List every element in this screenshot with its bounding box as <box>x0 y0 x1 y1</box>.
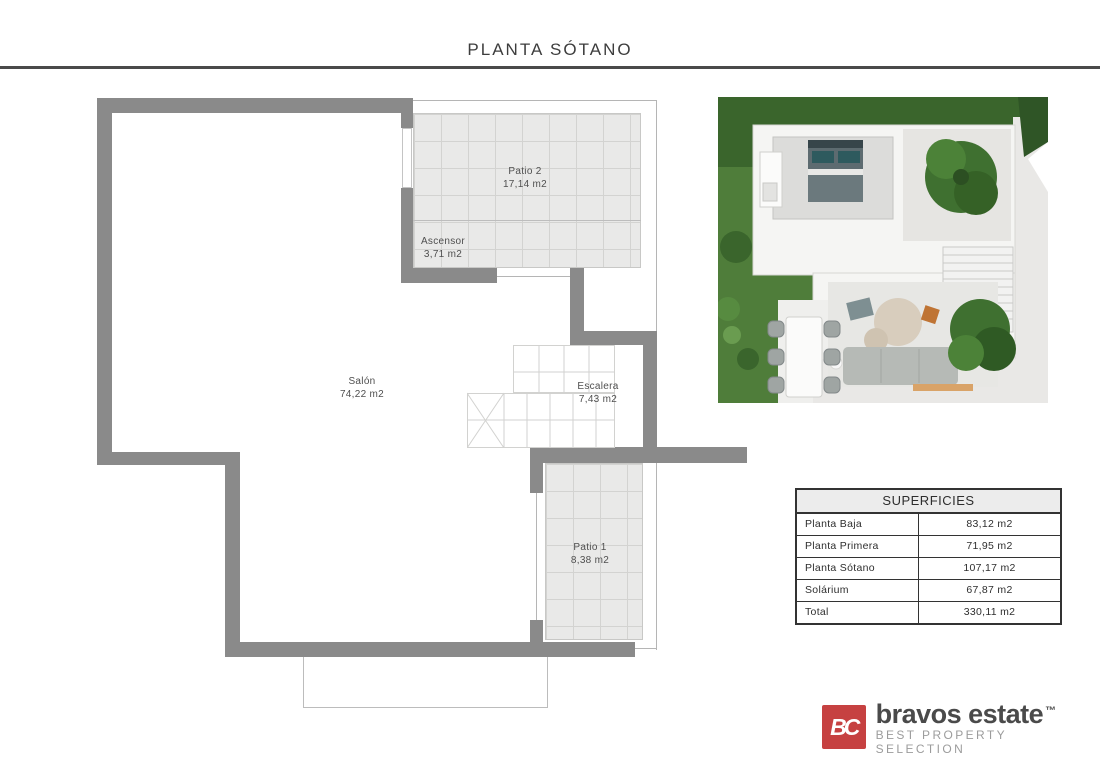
row-label: Planta Sótano <box>797 558 919 579</box>
row-value: 107,17 m2 <box>919 558 1060 579</box>
table-row: Planta Sótano 107,17 m2 <box>797 557 1060 579</box>
wall-east <box>643 331 657 463</box>
row-label: Total <box>797 602 919 623</box>
wall-below-patio2 <box>401 268 497 283</box>
room-area: 8,38 m2 <box>571 554 609 567</box>
table-row: Total 330,11 m2 <box>797 601 1060 623</box>
wall-patio1-west-upper <box>530 447 543 493</box>
room-name: Salón <box>340 375 384 388</box>
table-row: Planta Primera 71,95 m2 <box>797 535 1060 557</box>
render-3d-top-view <box>718 97 1048 413</box>
room-name: Ascensor <box>421 235 465 248</box>
row-label: Planta Primera <box>797 536 919 557</box>
room-area: 74,22 m2 <box>340 388 384 401</box>
floor-plan: Patio 2 17,14 m2 Ascensor 3,71 m2 Salón … <box>90 90 670 720</box>
header-divider <box>0 66 1100 69</box>
brand-name-text: bravos estate <box>876 699 1044 729</box>
room-name: Patio 2 <box>503 165 547 178</box>
brand-text: bravos estate™ BEST PROPERTY SELECTION <box>876 698 1100 756</box>
row-value: 71,95 m2 <box>919 536 1060 557</box>
surfaces-table: SUPERFICIES Planta Baja 83,12 m2 Planta … <box>795 488 1062 625</box>
room-label-patio2: Patio 2 17,14 m2 <box>503 165 547 191</box>
window-marker-salon <box>497 276 570 277</box>
row-value: 330,11 m2 <box>919 602 1060 623</box>
wall-patio2-west-upper <box>401 113 413 128</box>
row-value: 67,87 m2 <box>919 580 1060 601</box>
row-value: 83,12 m2 <box>919 514 1060 535</box>
room-area: 17,14 m2 <box>503 178 547 191</box>
door-marker <box>402 128 412 188</box>
wall-step <box>97 452 240 465</box>
trademark-symbol: ™ <box>1045 705 1056 717</box>
page-title: PLANTA SÓTANO <box>0 40 1100 60</box>
wall-left-lower <box>225 452 240 657</box>
room-name: Patio 1 <box>571 541 609 554</box>
plot-boundary-top <box>413 100 657 101</box>
row-label: Planta Baja <box>797 514 919 535</box>
wall-bottom <box>225 642 635 657</box>
brand-monogram: BC <box>822 705 866 749</box>
room-label-escalera: Escalera 7,43 m2 <box>577 380 618 406</box>
patio2-ascensor-divider <box>413 220 641 221</box>
porch-outline <box>303 657 548 708</box>
wall-top <box>97 98 413 113</box>
brand-name: bravos estate™ <box>876 698 1100 727</box>
table-row: Solárium 67,87 m2 <box>797 579 1060 601</box>
room-label-patio1: Patio 1 8,38 m2 <box>571 541 609 567</box>
wall-patio1-west-lower <box>530 620 543 643</box>
brand-logo: BC bravos estate™ BEST PROPERTY SELECTIO… <box>822 698 1100 756</box>
brand-tagline: BEST PROPERTY SELECTION <box>876 728 1100 756</box>
window-marker-patio1 <box>536 493 537 620</box>
wall-left <box>97 98 112 465</box>
row-label: Solárium <box>797 580 919 601</box>
wall-stair-north <box>570 331 647 345</box>
room-name: Escalera <box>577 380 618 393</box>
room-area: 3,71 m2 <box>421 248 465 261</box>
table-row: Planta Baja 83,12 m2 <box>797 514 1060 535</box>
room-label-ascensor: Ascensor 3,71 m2 <box>421 235 465 261</box>
surfaces-table-title: SUPERFICIES <box>797 490 1060 514</box>
wall-patio1-north <box>530 447 747 463</box>
room-area: 7,43 m2 <box>577 393 618 406</box>
room-label-salon: Salón 74,22 m2 <box>340 375 384 401</box>
